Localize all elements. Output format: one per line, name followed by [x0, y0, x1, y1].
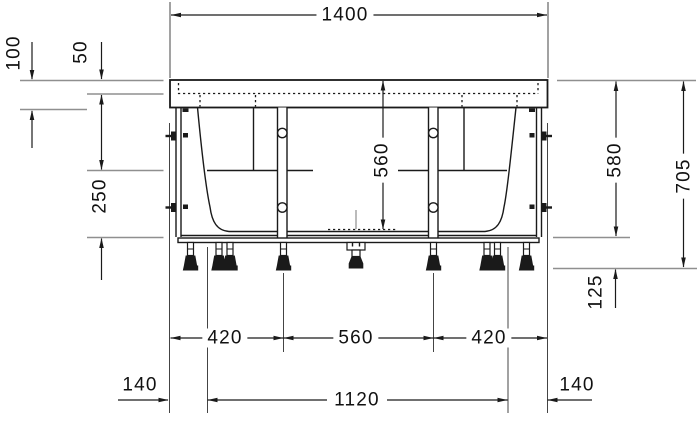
dim-label-rim-edge: 50: [72, 40, 91, 64]
dim-label-foot-span-right: 420: [466, 329, 511, 348]
adjuster-joint: [278, 203, 287, 212]
drain-foot: [347, 243, 365, 269]
adjuster-joint: [278, 128, 287, 137]
dim-label-feet-height: 125: [587, 274, 606, 309]
panel-clips: [166, 109, 553, 213]
apron-walls: [176, 108, 542, 238]
dim-label-overall-width: 1400: [316, 6, 373, 25]
support-frame: [178, 108, 539, 243]
dim-label-rim-drop: 100: [5, 35, 24, 70]
adjuster-joint: [429, 203, 438, 212]
bathtub-body: [166, 80, 553, 271]
dim-label-foot-span-left: 420: [202, 329, 247, 348]
basin: [181, 108, 537, 236]
technical-drawing-canvas: 1400 100 50 250 560 580 705 125 420 560 …: [0, 0, 700, 421]
extension-lines: [170, 2, 549, 413]
dim-label-offset-left: 140: [122, 376, 157, 395]
dim-label-foot-span-center: 560: [333, 329, 378, 348]
post-right: [429, 108, 439, 239]
dim-label-frame-span: 1120: [329, 391, 385, 410]
dim-label-inner-depth: 560: [373, 137, 392, 182]
dim-label-overall-height: 705: [675, 153, 694, 198]
base-rail: [178, 238, 539, 243]
dim-label-apron-height: 250: [91, 178, 110, 213]
adjuster-joint: [429, 128, 438, 137]
post-left: [278, 108, 288, 239]
dim-label-offset-right: 140: [559, 376, 594, 395]
dim-label-rim-height: 580: [606, 137, 625, 182]
